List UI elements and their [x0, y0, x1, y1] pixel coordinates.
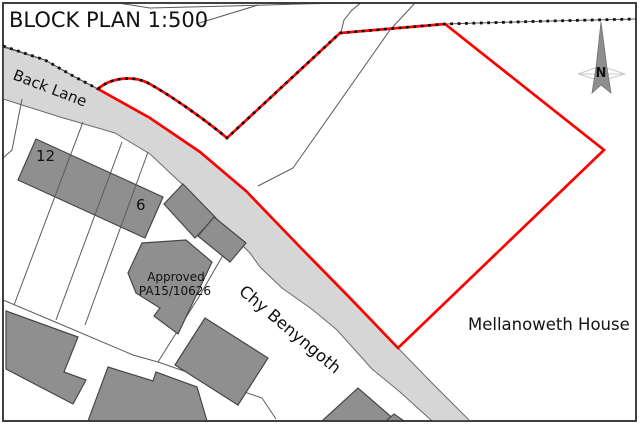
block-plan-page: N BLOCK PLAN 1:500 Back Lane 12 6 Approv… [0, 0, 640, 430]
mellanoweth-house-label: Mellanoweth House [468, 315, 630, 334]
house-6-label: 6 [136, 196, 146, 214]
page-title: BLOCK PLAN 1:500 [9, 8, 208, 32]
approved-label-line1: Approved [147, 270, 205, 284]
house-12-label: 12 [36, 147, 55, 165]
approved-label-line2: PA15/10626 [139, 284, 211, 298]
north-label: N [596, 66, 607, 81]
block-plan-map: N BLOCK PLAN 1:500 Back Lane 12 6 Approv… [0, 0, 640, 430]
